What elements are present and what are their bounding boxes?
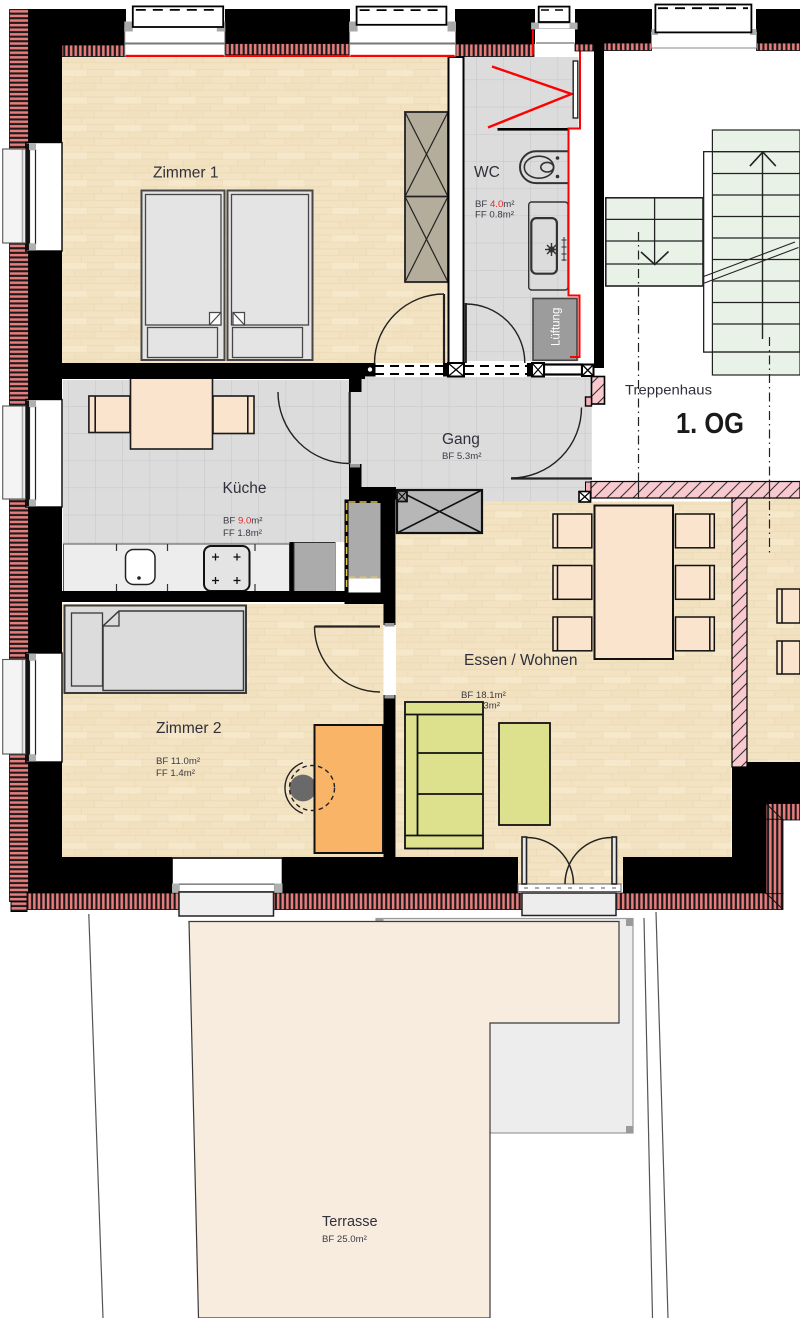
svg-text:Gang: Gang xyxy=(442,431,480,448)
svg-text:Küche: Küche xyxy=(223,480,267,497)
svg-text:BF 11.0m²: BF 11.0m² xyxy=(156,756,201,767)
svg-text:WC: WC xyxy=(474,164,500,181)
svg-text:BF 5.3m²: BF 5.3m² xyxy=(442,451,482,462)
svg-text:BF 18.1m²: BF 18.1m² xyxy=(461,690,507,701)
svg-text:BF 4.0m²: BF 4.0m² xyxy=(475,199,515,210)
svg-text:Essen / Wohnen: Essen / Wohnen xyxy=(464,652,577,669)
svg-text:Treppenhaus: Treppenhaus xyxy=(625,382,712,398)
svg-text:1. OG: 1. OG xyxy=(676,408,744,440)
svg-text:BF 25.0m²: BF 25.0m² xyxy=(322,1234,368,1245)
svg-text:FF 0.8m²: FF 0.8m² xyxy=(475,210,515,221)
svg-text:BF 9.0m²: BF 9.0m² xyxy=(223,516,263,527)
svg-text:Terrasse: Terrasse xyxy=(322,1214,378,1230)
svg-text:Zimmer 1: Zimmer 1 xyxy=(153,165,218,182)
svg-text:Lüftung: Lüftung xyxy=(551,308,563,346)
svg-text:FF 1.8m²: FF 1.8m² xyxy=(223,528,263,539)
svg-text:Zimmer 2: Zimmer 2 xyxy=(156,720,221,737)
svg-text:FF 1.4m²: FF 1.4m² xyxy=(156,768,196,779)
